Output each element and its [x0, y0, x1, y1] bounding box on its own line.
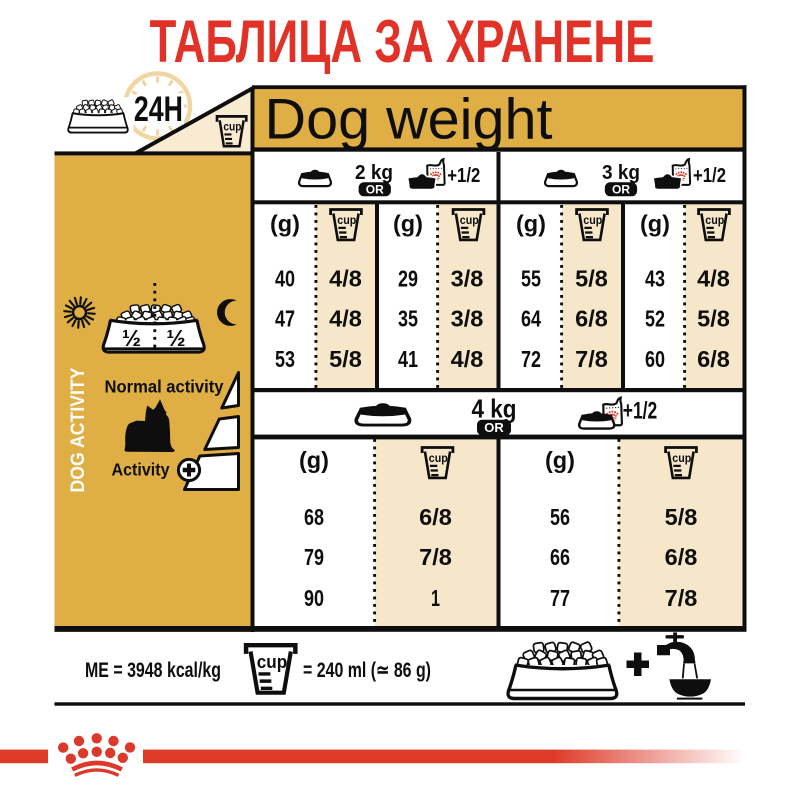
svg-text:68: 68	[304, 504, 324, 530]
svg-text:47: 47	[275, 306, 295, 332]
svg-text:79: 79	[304, 544, 324, 570]
svg-text:4/8: 4/8	[697, 266, 730, 292]
svg-text:29: 29	[398, 266, 418, 292]
svg-text:55: 55	[521, 266, 541, 292]
svg-text:90: 90	[304, 585, 324, 611]
svg-text:35: 35	[398, 306, 418, 332]
svg-text:60: 60	[645, 346, 665, 372]
svg-text:53: 53	[275, 346, 295, 372]
svg-text:(g): (g)	[640, 210, 670, 236]
svg-text:DOG ACTIVITY: DOG ACTIVITY	[67, 368, 89, 493]
svg-text:= 240 ml (≃ 86 g): = 240 ml (≃ 86 g)	[303, 658, 431, 682]
svg-text:1: 1	[431, 585, 440, 611]
svg-text:3/8: 3/8	[451, 266, 484, 292]
svg-text:6/8: 6/8	[665, 544, 698, 570]
svg-text:ME = 3948 kcal/kg: ME = 3948 kcal/kg	[85, 658, 221, 682]
svg-text:Dog weight: Dog weight	[265, 88, 553, 152]
svg-text:Normal activity: Normal activity	[105, 376, 224, 396]
svg-text:7/8: 7/8	[419, 544, 452, 570]
svg-text:5/8: 5/8	[665, 504, 698, 530]
svg-text:6/8: 6/8	[697, 346, 730, 372]
svg-text:3 kg: 3 kg	[602, 161, 640, 184]
svg-text:OR: OR	[612, 183, 630, 197]
svg-text:24H: 24H	[134, 90, 183, 129]
svg-text:72: 72	[521, 346, 541, 372]
svg-text:OR: OR	[366, 183, 384, 197]
svg-text:(g): (g)	[393, 210, 423, 236]
svg-text:+1/2: +1/2	[623, 398, 658, 425]
svg-text:4 kg: 4 kg	[472, 394, 517, 424]
svg-text:2 kg: 2 kg	[355, 161, 393, 184]
svg-text:(g): (g)	[545, 447, 575, 473]
svg-text:+1/2: +1/2	[693, 164, 726, 187]
svg-text:(g): (g)	[299, 447, 329, 473]
svg-text:7/8: 7/8	[575, 346, 608, 372]
svg-text:5/8: 5/8	[575, 266, 608, 292]
svg-text:6/8: 6/8	[419, 504, 452, 530]
svg-text:Activity: Activity	[112, 459, 170, 479]
svg-text:5/8: 5/8	[329, 346, 362, 372]
svg-text:52: 52	[645, 306, 665, 332]
svg-text:½: ½	[122, 325, 141, 351]
svg-text:40: 40	[275, 266, 295, 292]
svg-text:+1/2: +1/2	[447, 164, 480, 187]
svg-text:4/8: 4/8	[329, 306, 362, 332]
svg-text:5/8: 5/8	[697, 306, 730, 332]
svg-text:4/8: 4/8	[451, 346, 484, 372]
svg-text:3/8: 3/8	[451, 306, 484, 332]
svg-text:(g): (g)	[270, 210, 300, 236]
svg-text:7/8: 7/8	[665, 585, 698, 611]
svg-text:43: 43	[645, 266, 665, 292]
svg-text:(g): (g)	[516, 210, 546, 236]
svg-text:4/8: 4/8	[329, 266, 362, 292]
svg-text:64: 64	[521, 306, 541, 332]
svg-text:56: 56	[550, 504, 570, 530]
svg-text:41: 41	[398, 346, 418, 372]
svg-text:½: ½	[166, 325, 185, 351]
svg-text:77: 77	[550, 585, 570, 611]
svg-text:6/8: 6/8	[575, 306, 608, 332]
svg-text:66: 66	[550, 544, 570, 570]
svg-text:OR: OR	[484, 420, 504, 435]
svg-text:ТАБЛИЦА ЗА ХРАНЕНЕ: ТАБЛИЦА ЗА ХРАНЕНЕ	[150, 8, 655, 75]
